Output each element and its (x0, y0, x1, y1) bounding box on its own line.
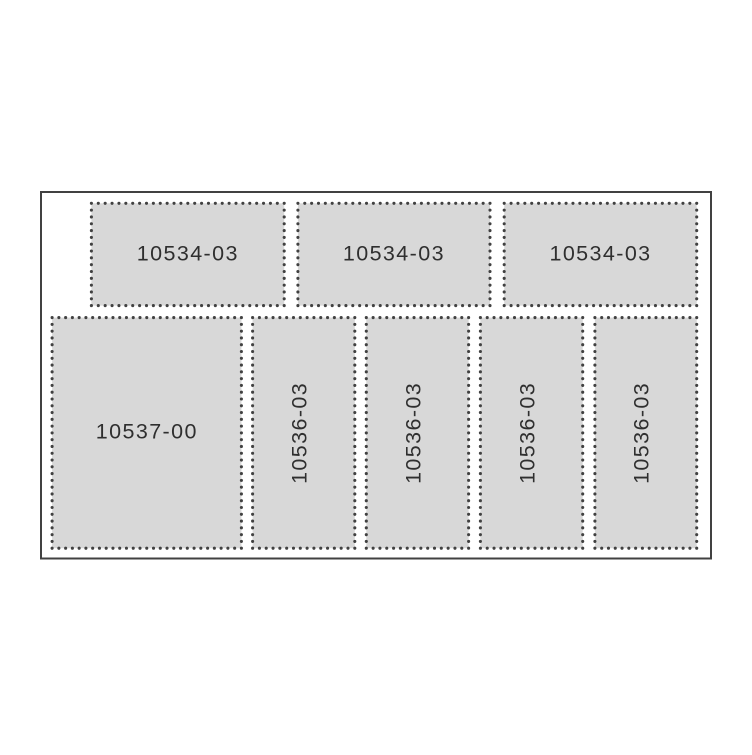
svg-text:10536-03: 10536-03 (401, 382, 425, 484)
svg-text:10536-03: 10536-03 (515, 382, 539, 484)
svg-text:10536-03: 10536-03 (288, 382, 312, 484)
svg-text:10534-03: 10534-03 (137, 242, 239, 266)
svg-text:10536-03: 10536-03 (630, 382, 654, 484)
svg-text:10537-00: 10537-00 (96, 420, 198, 444)
svg-text:10534-03: 10534-03 (549, 242, 651, 266)
svg-text:10534-03: 10534-03 (343, 242, 445, 266)
